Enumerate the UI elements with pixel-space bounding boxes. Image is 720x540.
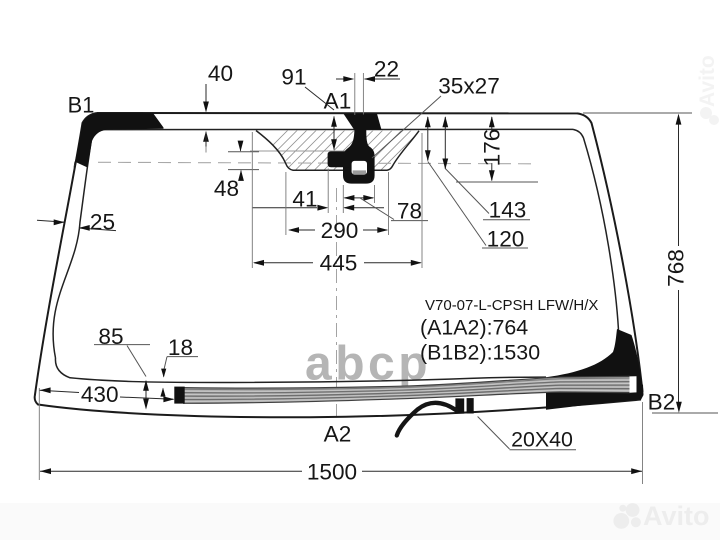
svg-text:430: 430 — [81, 382, 119, 407]
svg-text:V70-07-L-CPSH LFW/H/X: V70-07-L-CPSH LFW/H/X — [425, 297, 598, 314]
svg-text:(B1B2):1530: (B1B2):1530 — [420, 341, 540, 365]
svg-text:1500: 1500 — [307, 460, 357, 485]
svg-text:40: 40 — [208, 61, 233, 86]
svg-text:85: 85 — [98, 324, 123, 349]
svg-text:B2: B2 — [648, 390, 676, 415]
svg-text:768: 768 — [664, 249, 689, 287]
svg-text:22: 22 — [374, 57, 399, 82]
svg-text:(A1A2):764: (A1A2):764 — [420, 316, 528, 340]
svg-text:290: 290 — [321, 218, 359, 243]
svg-text:A1: A1 — [324, 89, 352, 114]
svg-text:B1: B1 — [68, 93, 95, 118]
svg-text:Avito: Avito — [696, 55, 719, 107]
svg-text:78: 78 — [397, 199, 422, 224]
svg-text:48: 48 — [214, 176, 239, 201]
svg-text:120: 120 — [487, 227, 525, 252]
svg-text:143: 143 — [489, 198, 527, 223]
svg-text:445: 445 — [320, 251, 358, 276]
svg-text:35x27: 35x27 — [438, 74, 500, 99]
svg-text:Avito: Avito — [643, 501, 710, 531]
svg-text:176: 176 — [480, 129, 505, 167]
svg-text:91: 91 — [281, 65, 306, 90]
svg-text:20X40: 20X40 — [511, 428, 573, 452]
svg-text:A2: A2 — [324, 422, 352, 447]
